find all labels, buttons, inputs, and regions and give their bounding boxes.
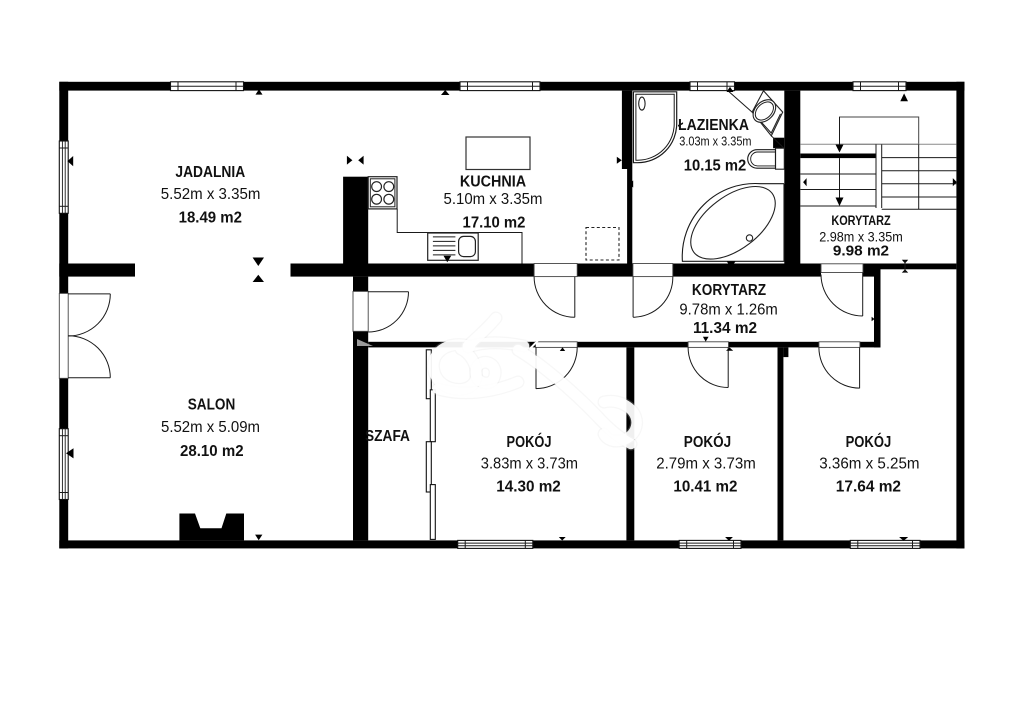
- svg-text:POKÓJ: POKÓJ: [507, 432, 552, 451]
- svg-text:KORYTARZ: KORYTARZ: [692, 282, 766, 299]
- svg-text:3.83m x 3.73m: 3.83m x 3.73m: [481, 456, 578, 473]
- svg-text:5.10m x 3.35m: 5.10m x 3.35m: [444, 191, 543, 208]
- svg-text:17.64 m2: 17.64 m2: [836, 479, 901, 496]
- svg-text:POKÓJ: POKÓJ: [684, 432, 731, 451]
- svg-text:SALON: SALON: [188, 397, 236, 414]
- svg-text:17.10 m2: 17.10 m2: [463, 215, 526, 232]
- svg-text:JADALNIA: JADALNIA: [175, 164, 245, 181]
- svg-text:9.78m x 1.26m: 9.78m x 1.26m: [679, 301, 777, 318]
- svg-text:3.03m x 3.35m: 3.03m x 3.35m: [679, 134, 751, 149]
- svg-text:11.34 m2: 11.34 m2: [693, 320, 757, 337]
- svg-text:KUCHNIA: KUCHNIA: [460, 173, 527, 190]
- svg-text:10.15 m2: 10.15 m2: [684, 158, 746, 175]
- svg-text:ŁAZIENKA: ŁAZIENKA: [678, 117, 749, 134]
- svg-text:28.10 m2: 28.10 m2: [180, 443, 244, 460]
- svg-text:SZAFA: SZAFA: [365, 428, 410, 445]
- svg-text:POKÓJ: POKÓJ: [846, 432, 892, 451]
- svg-text:5.52m x 3.35m: 5.52m x 3.35m: [161, 186, 261, 203]
- svg-text:KORYTARZ: KORYTARZ: [831, 213, 890, 228]
- svg-text:5.52m x 5.09m: 5.52m x 5.09m: [161, 419, 260, 436]
- svg-text:14.30 m2: 14.30 m2: [496, 479, 561, 496]
- svg-text:3.36m x 5.25m: 3.36m x 5.25m: [819, 456, 919, 473]
- svg-text:10.41 m2: 10.41 m2: [673, 479, 737, 496]
- svg-text:2.79m x 3.73m: 2.79m x 3.73m: [656, 456, 756, 473]
- svg-text:18.49 m2: 18.49 m2: [179, 209, 242, 226]
- svg-text:9.98 m2: 9.98 m2: [833, 243, 889, 259]
